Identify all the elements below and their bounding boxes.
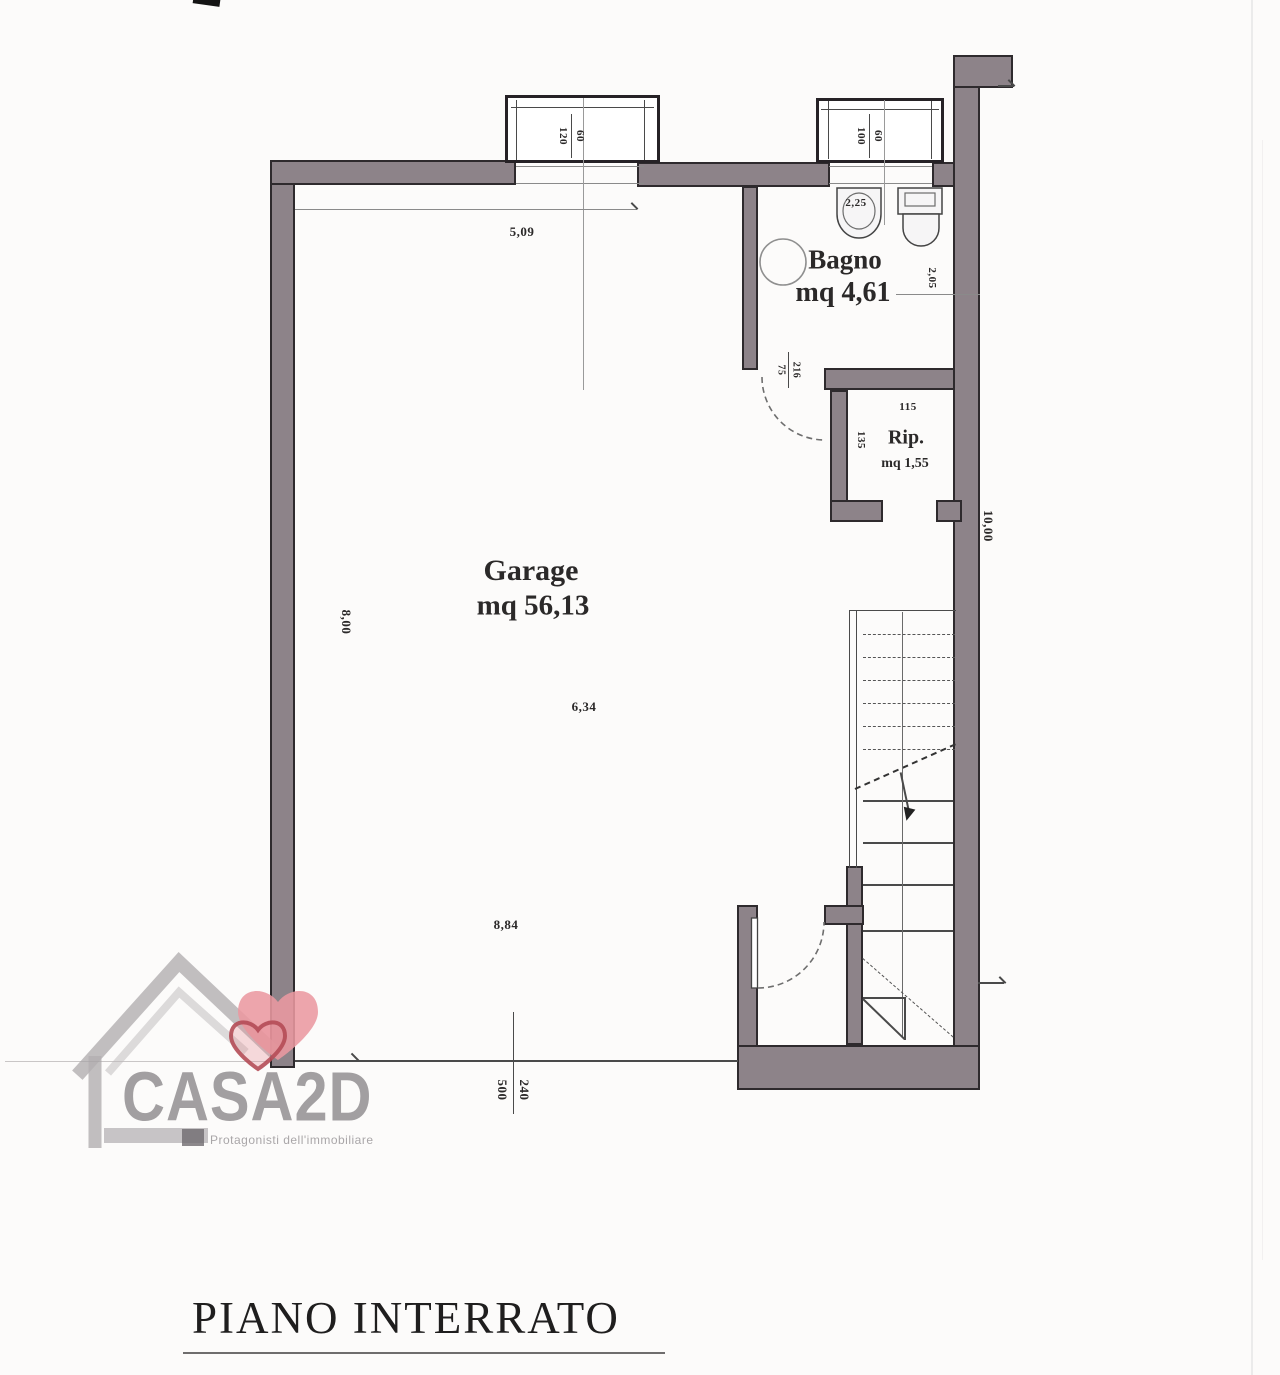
dim-rip-width: 115 [899,401,916,413]
dim-garage-bottom-width: 8,84 [494,917,519,933]
plan-vector-overlay [0,0,1280,1375]
dim-window-right-width: 100 [855,127,867,145]
logo-tagline-text: Protagonisti dell'immobiliare [210,1133,374,1147]
dim-bagno-door-height: 216 [791,362,802,379]
dim-bagno-depth: 2,05 [926,267,938,288]
floorplan-sheet: 120 60 100 60 75 216 500 240 5,09 2,25 2… [0,0,1280,1375]
room-area-bagno: mq 4,61 [796,277,891,309]
dim-window-left-width: 120 [557,127,569,145]
room-area-rip: mq 1,55 [881,456,928,472]
dim-garage-mid-width: 6,34 [572,699,597,715]
dim-bagno-width: 2,25 [845,197,866,209]
dim-rip-depth: 135 [855,431,867,449]
floor-title-underline [183,1352,665,1354]
dim-window-left-divider [571,114,572,158]
dim-window-left-height: 60 [574,130,586,142]
stair-door-leaf [752,918,758,988]
dim-garage-top-width: 5,09 [510,224,535,240]
room-label-rip: Rip. [888,427,924,450]
stair-door-arc [758,922,824,988]
floor-title: PIANO INTERRATO [192,1292,620,1344]
room-label-bagno: Bagno [808,245,882,276]
dim-window-right-height: 60 [872,130,884,142]
logo-brand-text: CASA2D [122,1058,373,1138]
dim-garage-door-width: 500 [494,1080,510,1101]
dim-bagno-door-divider [788,352,789,388]
room-label-garage: Garage [484,554,579,588]
dim-garage-left-height: 8,00 [338,610,354,635]
dim-garage-door-height: 240 [516,1080,532,1101]
dim-window-right-divider [869,114,870,158]
room-area-garage: mq 56,13 [477,590,590,623]
toilet-bowl-icon [903,214,939,246]
bagno-door-arc [762,377,825,440]
dim-right-side-height: 10,00 [980,510,996,542]
dim-bagno-door-width: 75 [776,365,787,376]
